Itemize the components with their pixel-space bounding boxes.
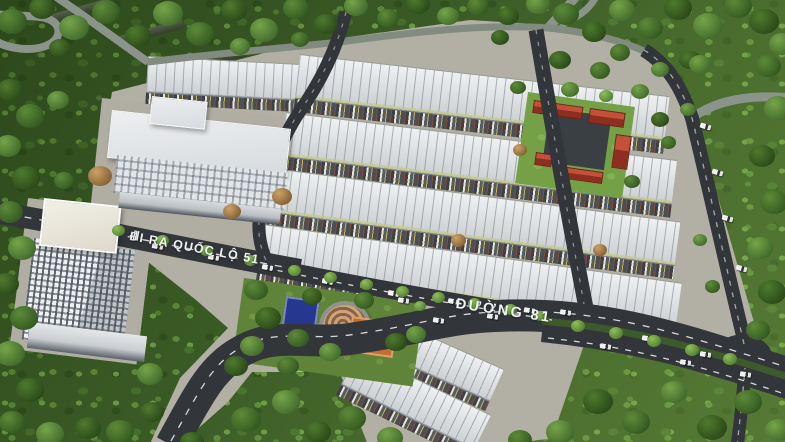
tree	[360, 279, 373, 290]
tree	[396, 286, 409, 297]
tree	[240, 336, 264, 356]
tree	[553, 3, 579, 25]
tree	[314, 14, 338, 34]
tree	[354, 292, 374, 309]
tree	[705, 280, 720, 293]
tree	[36, 422, 64, 442]
tree	[432, 292, 445, 303]
tree	[287, 329, 309, 347]
tree	[377, 427, 403, 442]
tree	[546, 420, 574, 442]
tree	[661, 381, 687, 403]
tower-roof	[39, 198, 122, 254]
aerial-masterplan-render: |||ĐI RA QUỐC LỘ 51||| ĐƯỜNG 81	[0, 0, 785, 442]
tree	[747, 237, 773, 259]
tree	[451, 234, 466, 247]
tree	[125, 25, 151, 47]
tree	[414, 301, 426, 311]
tree	[224, 356, 248, 376]
street-east-boundary	[644, 50, 746, 348]
tree	[661, 136, 676, 149]
tree	[272, 188, 292, 205]
tree	[758, 280, 785, 304]
tree	[75, 417, 101, 439]
crosswalk-marks: |||	[129, 229, 142, 242]
tree	[140, 402, 164, 422]
tree	[385, 333, 407, 351]
tree	[760, 190, 785, 214]
apartment-upper-block	[149, 96, 208, 130]
tree	[437, 7, 459, 25]
tree	[305, 421, 331, 442]
tree	[288, 265, 301, 276]
tree	[324, 272, 337, 283]
tree	[497, 7, 519, 25]
tree	[755, 55, 781, 77]
tree	[746, 320, 770, 340]
tree	[277, 357, 299, 375]
tree	[689, 55, 711, 73]
tree	[549, 51, 571, 69]
tree	[582, 22, 606, 42]
tree	[47, 91, 69, 109]
tree	[765, 419, 785, 441]
tree	[377, 9, 399, 27]
tree	[610, 44, 630, 61]
tree	[106, 420, 134, 442]
road-duong-81-north	[171, 315, 785, 442]
tree	[230, 38, 250, 55]
tree	[255, 307, 281, 329]
tree	[302, 288, 322, 305]
tree	[137, 363, 163, 385]
tree	[112, 225, 125, 236]
tree	[244, 280, 268, 300]
tree	[406, 326, 426, 343]
tree	[54, 172, 74, 189]
tree	[49, 39, 71, 57]
street-mid	[536, 30, 586, 308]
tree	[319, 343, 341, 361]
tree	[88, 166, 112, 186]
tree	[749, 145, 775, 167]
tree	[590, 62, 610, 79]
tree	[637, 17, 663, 39]
